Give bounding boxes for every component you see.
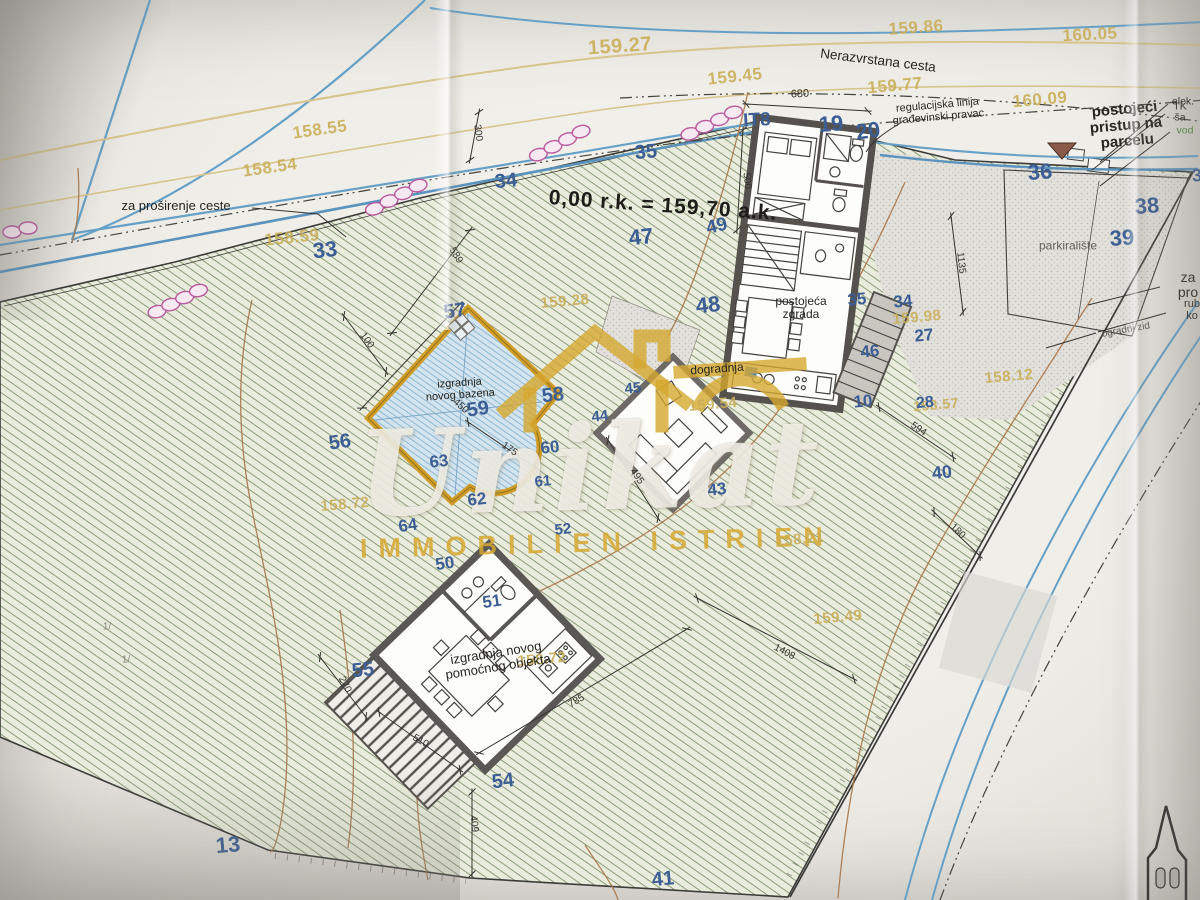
dimension-label: 495 <box>627 467 645 487</box>
elevation-label: 159.27 <box>587 34 653 60</box>
dimension-label: 175 <box>499 441 519 459</box>
dimension-label: 180 <box>947 522 967 541</box>
parcel-number: 60 <box>540 438 561 458</box>
parcel-number: 57 <box>442 300 467 324</box>
parcel-number: 59 <box>465 398 490 422</box>
parcel-number: 52 <box>554 521 572 539</box>
parcel-number: 63 <box>429 452 450 472</box>
road-edge-label: rub ko <box>1184 299 1200 323</box>
parcel-number: 56 <box>327 431 352 455</box>
fence-wall-label: ogradni zid <box>1101 321 1151 340</box>
parking-label: parkiralište <box>1039 240 1097 253</box>
labels-layer: 159.27159.86160.05159.45159.77160.09158.… <box>0 0 1200 900</box>
elevation-label: 158.72 <box>320 495 370 515</box>
parcel-number: 34 <box>494 170 518 193</box>
parcel-number: 44 <box>591 408 609 426</box>
dimension-label: 589 <box>446 246 464 266</box>
elevation-label: 159.54 <box>688 395 738 415</box>
parcel-number: 62 <box>467 490 488 510</box>
parcel-number: 38 <box>1134 193 1160 218</box>
parcel-number: 41 <box>651 868 675 891</box>
parcel-number: 34 <box>893 292 913 312</box>
elevation-label: 159.28 <box>540 292 590 312</box>
dimension-label: 100 <box>357 331 376 351</box>
parcel-number: 48 <box>695 292 722 318</box>
new-auxiliary-building-label: izgradnja novog pomoćnog objekta <box>442 638 551 682</box>
parcel-number: 33 <box>312 237 339 263</box>
dimension-label: 594 <box>908 421 928 439</box>
dimension-label: 409 <box>467 815 479 833</box>
parcel-number: 58 <box>541 384 565 408</box>
parcel-number: 40 <box>931 462 953 483</box>
parcel-number: 43 <box>707 480 728 500</box>
parcel-number: 27 <box>914 326 934 346</box>
elevation-label: 160.05 <box>1062 24 1118 45</box>
parcel-number: 13 <box>215 832 241 858</box>
parcel-number: IT8 <box>743 110 771 132</box>
terrain-mark: 1/ <box>103 623 111 634</box>
parcel-number: 64 <box>397 516 418 537</box>
parcel-number: 46 <box>860 342 880 362</box>
parcel-number: 55 <box>351 659 375 683</box>
parcel-number: 20 <box>854 118 882 145</box>
parcel-number: 39 <box>1109 225 1135 250</box>
dimension-label: 510 <box>410 733 430 751</box>
dimension-label: 1408 <box>772 643 797 663</box>
parcel-number: 3 <box>1191 166 1200 186</box>
dimension-label: 270 <box>335 675 352 695</box>
parcel-number: 10 <box>853 392 873 412</box>
new-pool-label: izgradnja novog bazena <box>425 376 496 405</box>
road-widening-label-right: za pro <box>1178 270 1198 300</box>
parcel-number: 50 <box>434 554 455 575</box>
elevation-label: 160.09 <box>1012 88 1068 111</box>
parcel-number: 61 <box>534 473 552 491</box>
existing-building-label: postojeća zgrada <box>775 295 826 321</box>
extension-label: dogradnja <box>690 361 744 378</box>
parcel-number: 51 <box>481 592 502 613</box>
parcel-number: 19 <box>818 111 844 136</box>
dimension-label: 785 <box>567 693 587 711</box>
elevation-label: 159.86 <box>888 17 944 39</box>
site-plan-photo: Unikat IMMOBILIEN ISTRIEN 159.27159.8616… <box>0 0 1200 900</box>
elevation-label: 158.21 <box>775 530 825 550</box>
road-widening-label: za proširenje ceste <box>121 199 230 213</box>
parcel-number: 45 <box>624 380 642 398</box>
parcel-number: 28 <box>915 394 934 413</box>
dimension-label: 500 <box>740 172 752 190</box>
elevation-label: 158.54 <box>241 155 298 181</box>
dimension-label: 1135 <box>954 252 967 275</box>
water-label: vod <box>1177 125 1194 136</box>
parcel-number: 35 <box>847 290 867 310</box>
telecom-label: TK ša <box>1170 102 1190 125</box>
dimension-label: 300 <box>470 124 483 142</box>
elevation-label: 158.55 <box>291 117 348 143</box>
parcel-number: 47 <box>628 224 655 250</box>
dimension-label: 680 <box>791 89 810 102</box>
parcel-number: 54 <box>491 770 515 794</box>
elevation-label: 158.12 <box>984 367 1034 387</box>
regulation-line-label: regulacijska linija građevinski pravac <box>891 96 984 128</box>
road-name-label: Nerazvrstana cesta <box>819 47 936 76</box>
parcel-number: 35 <box>634 141 658 164</box>
elevation-label: 159.45 <box>707 65 764 89</box>
parcel-number: 36 <box>1027 159 1053 184</box>
terrain-mark: 1/ <box>122 656 130 667</box>
elevation-label: 159.77 <box>867 74 923 97</box>
elevation-label: 159.49 <box>813 608 863 628</box>
existing-access-label: postojeći pristup na parcelu <box>1087 99 1165 154</box>
